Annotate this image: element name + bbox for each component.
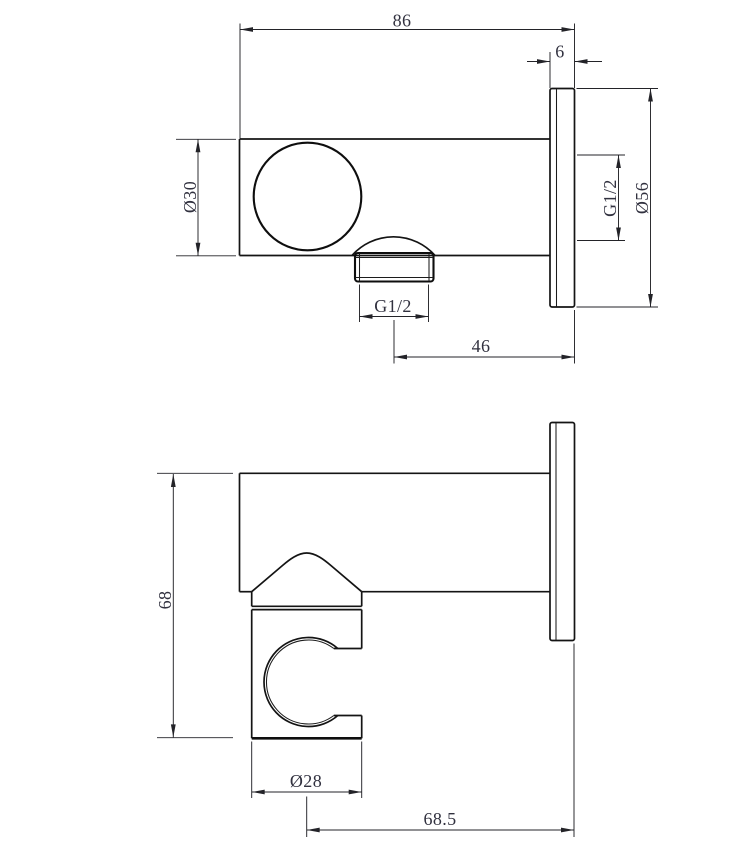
dim-flange-diameter-label: Ø56	[632, 182, 652, 214]
flange-outline	[550, 89, 575, 308]
dim-body-diameter: Ø30	[176, 139, 236, 256]
dim-outlet-thread-label: G1/2	[374, 296, 412, 316]
body-outline	[240, 139, 551, 256]
front-view: 68 Ø28 68.5	[155, 423, 575, 838]
holder-socket-circle	[254, 143, 362, 251]
outlet-connector	[352, 237, 435, 282]
dim-wall-thread-label: G1/2	[600, 179, 620, 217]
drawing-sheet: 86 6 Ø30 G1/2 Ø56	[0, 0, 741, 861]
holder-dome	[252, 553, 362, 592]
dim-holder-to-wall: 68.5	[307, 644, 574, 838]
dim-holder-to-wall-label: 68.5	[423, 809, 456, 829]
drawing-canvas: 86 6 Ø30 G1/2 Ø56	[0, 0, 741, 861]
dim-outlet-to-wall: 46	[394, 310, 575, 364]
holder-neck	[252, 592, 362, 610]
clip-inner-arc	[266, 640, 333, 724]
dim-total-depth: 86	[240, 11, 575, 140]
clip-outer-arc	[264, 637, 338, 726]
dim-outlet-thread: G1/2	[360, 285, 429, 323]
wall-flange-side	[550, 89, 575, 308]
body-outline-front	[240, 473, 551, 591]
holder-block	[252, 610, 362, 739]
dim-holder-diameter-label: Ø28	[290, 771, 322, 791]
dim-wall-thread: G1/2	[577, 155, 625, 241]
side-view: 86 6 Ø30 G1/2 Ø56	[176, 11, 658, 364]
dim-flange-thickness: 6	[527, 42, 602, 89]
dim-total-height-label: 68	[155, 591, 175, 610]
wall-flange-front	[550, 423, 575, 641]
dim-body-diameter-label: Ø30	[180, 181, 200, 213]
dim-holder-diameter: Ø28	[252, 742, 362, 799]
dim-total-height: 68	[155, 473, 233, 737]
flange-outline	[550, 423, 575, 641]
dim-flange-thickness-label: 6	[555, 42, 564, 62]
dim-outlet-to-wall-label: 46	[472, 336, 491, 356]
dim-total-depth-label: 86	[393, 11, 412, 31]
